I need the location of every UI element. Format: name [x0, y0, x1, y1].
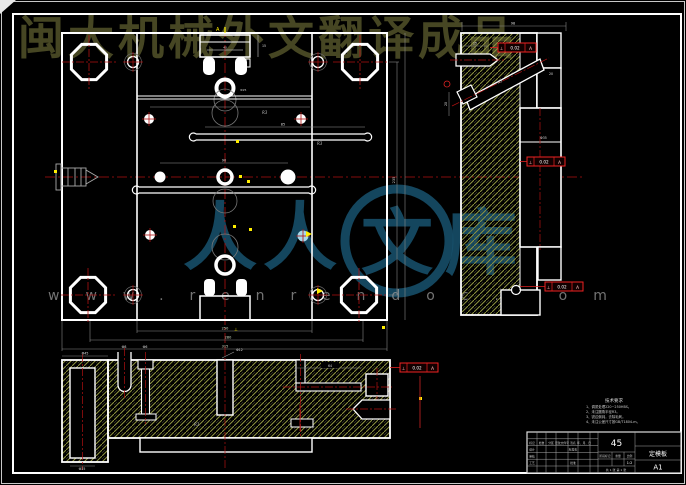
tb-header: 处数 — [539, 441, 545, 445]
top-slot — [456, 54, 498, 66]
dim-label: 20 — [444, 102, 448, 106]
slot — [203, 57, 215, 75]
dim-label: 20 — [549, 72, 553, 76]
tb-part-name: 定模板 — [649, 450, 667, 458]
fillet-label: R3 — [194, 422, 200, 427]
tb-row-label: 审核 — [529, 454, 535, 458]
dim-label: Ф8 — [122, 345, 127, 349]
gdt-symbol: ⊥ — [529, 160, 533, 166]
note-line: 1、调质处理220~250HBS。 — [586, 404, 631, 409]
tb-scale-value: 1:2 — [627, 461, 632, 465]
gdt-symbol: ⊥ — [402, 366, 406, 372]
hole — [281, 170, 296, 185]
gdt-tolerance: 0.02 — [510, 46, 520, 51]
engineering-drawing: 闽大机械外文翻译成品 人人 文 库 www.renrendoc.com — [0, 0, 686, 485]
section-mark-a: A — [216, 27, 220, 33]
slot — [204, 279, 215, 296]
gdt-tolerance: 0.02 — [539, 160, 549, 165]
watermark-top: 闽大机械外文翻译成品 — [18, 11, 518, 65]
tb-drawing-no: A1 — [653, 464, 662, 472]
tb-header: 签名 — [570, 441, 576, 445]
tb-sheet-info: 共 1 张 第 1 张 — [606, 467, 627, 472]
dim-label: 64 — [328, 364, 332, 368]
dim-label: 235 — [392, 177, 396, 184]
tb-row-label: 工艺 — [529, 461, 535, 465]
title-block: 标记 处数 分区 更改文件号 签名 年、月、日 设计 审核 工艺 标准化 批准 … — [527, 432, 681, 473]
side-view: R3 98 25 20 20 Ф35 — [444, 22, 566, 316]
tb-header: 年、月、日 — [577, 441, 591, 445]
tb-weight-label: 重量 — [615, 454, 621, 458]
tb-header: 分区 — [548, 441, 554, 445]
tb-material: 45 — [611, 439, 622, 449]
dim-label: 40 — [223, 46, 227, 50]
fillet-label: R3 — [317, 141, 323, 146]
dim-label: 280 — [225, 336, 232, 340]
gdt-frame: ⊥ 0.02 A — [520, 157, 565, 166]
note-line: 4、未注公差尺寸按GB/T1804-m。 — [586, 419, 640, 424]
tb-header: 更改文件号 — [555, 441, 569, 445]
pin-hole — [118, 352, 131, 392]
dim-label: 85 — [281, 123, 285, 127]
tb-row-label: 批准 — [570, 461, 576, 465]
gdt-tolerance: 0.02 — [557, 285, 567, 290]
dim-label: Ф6 — [143, 345, 148, 349]
gdt-symbol: ⊥ — [500, 46, 504, 52]
note-line: 2、未注圆角半径R3。 — [586, 409, 620, 414]
dim-label: 315 — [222, 345, 229, 349]
dim-label: 90 — [222, 159, 226, 163]
hole — [155, 172, 166, 183]
dim-label: 250 — [222, 327, 229, 331]
tb-header: 标记 — [529, 441, 535, 445]
slot — [235, 57, 247, 75]
tb-stage-label: 阶段标记 — [599, 454, 610, 458]
note-line: 3、锐边倒钝，去除毛刺。 — [586, 414, 625, 419]
cavity-notch — [520, 108, 561, 247]
dim-label: 25 — [473, 42, 477, 46]
dim-label: Ф25 — [79, 467, 86, 471]
watermark-top-text: 闽大机械外文翻译成品 — [18, 11, 518, 65]
dim-label: Ф35 — [540, 136, 547, 140]
cad-drawing-canvas: 闽大机械外文翻译成品 人人 文 库 www.renrendoc.com — [0, 0, 686, 485]
slot — [236, 279, 247, 296]
tb-scale-label: 比例 — [627, 454, 633, 458]
dim-label: Ф45 — [82, 352, 89, 356]
gdt-tolerance: 0.02 — [412, 366, 422, 371]
tb-row-label: 设计 — [529, 448, 535, 452]
dim-label: 98 — [511, 22, 515, 26]
fillet-label: R3 — [262, 110, 268, 115]
dim-label: Ф12 — [236, 348, 243, 352]
dim-label: 15 — [262, 44, 266, 48]
datum-perp-mark: ⊥ — [234, 327, 238, 333]
dim-label: Ф25 — [240, 88, 246, 92]
gdt-symbol: ⊥ — [547, 285, 551, 291]
notes-title: 技术要求 — [605, 397, 623, 404]
tb-std-label: 标准化 — [569, 448, 578, 452]
brand-left-text: 人人 — [183, 195, 343, 281]
